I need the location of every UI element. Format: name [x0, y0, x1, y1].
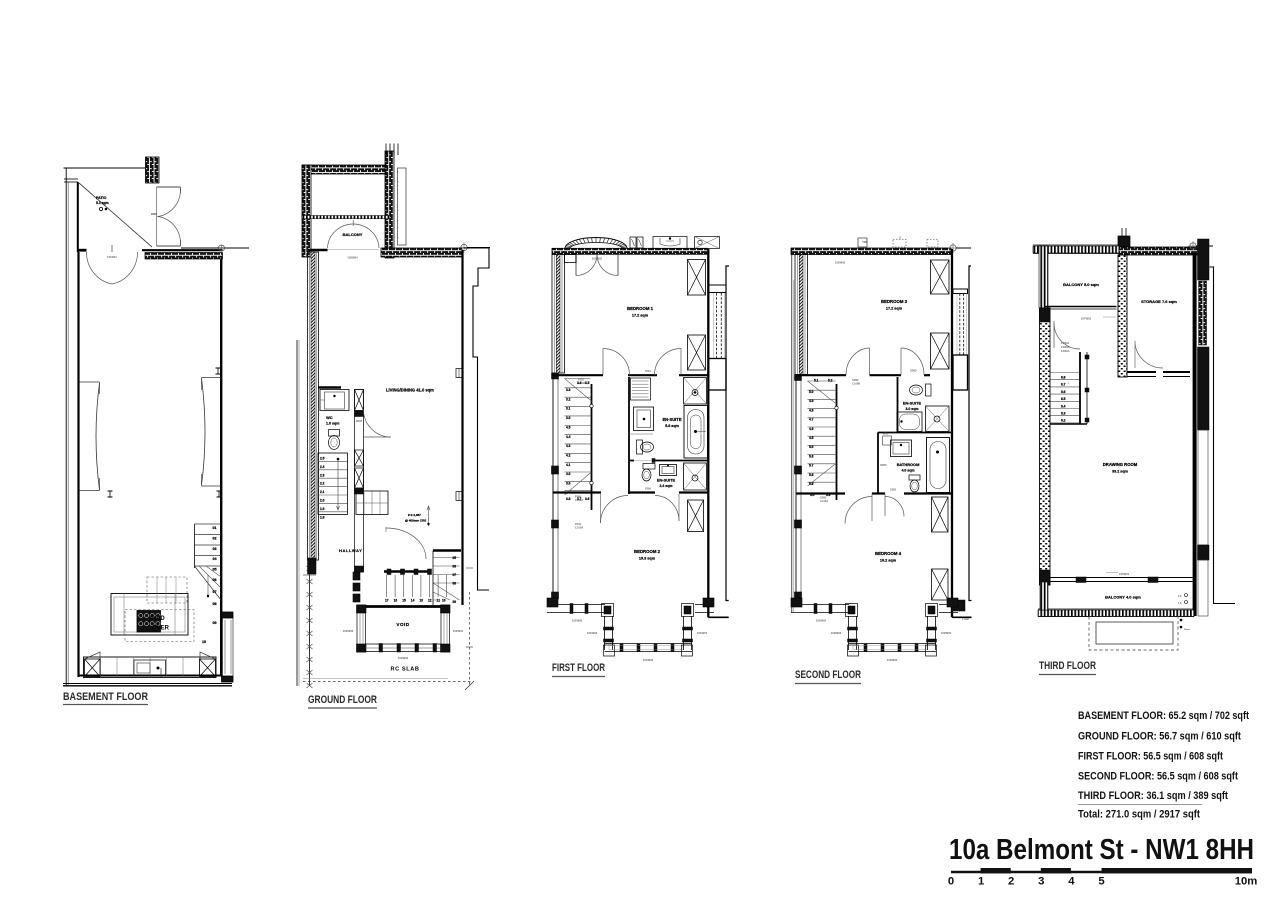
svg-text:10: 10 — [442, 599, 446, 603]
svg-text:03: 03 — [213, 547, 217, 551]
svg-text:09: 09 — [213, 621, 217, 625]
svg-text:5.6: 5.6 — [809, 473, 814, 477]
svg-text:4.8: 4.8 — [809, 408, 814, 412]
svg-text:BEDROOM 1: BEDROOM 1 — [627, 306, 654, 311]
svg-text:19.2 sqm: 19.2 sqm — [880, 559, 897, 563]
svg-text:02: 02 — [213, 537, 217, 541]
svg-text:7 riser: 7 riser — [962, 618, 969, 621]
svg-text:RC SLAB: RC SLAB — [390, 667, 419, 673]
svg-text:102W05: 102W05 — [816, 619, 827, 623]
svg-text:107W01: 107W01 — [1119, 572, 1130, 576]
svg-text:VOID: VOID — [150, 616, 165, 622]
svg-text:15: 15 — [402, 599, 406, 603]
svg-text:CL00A: CL00A — [575, 498, 583, 502]
svg-text:6.4: 6.4 — [1061, 404, 1066, 408]
svg-text:16: 16 — [394, 599, 398, 603]
svg-text:3.8: 3.8 — [566, 497, 571, 501]
svg-text:4.9: 4.9 — [809, 399, 814, 403]
svg-text:101W02: 101W02 — [592, 257, 603, 261]
svg-text:THIRD FLOOR: 36.1 sqm / 389 sq: THIRD FLOOR: 36.1 sqm / 389 sqft — [1078, 790, 1228, 802]
svg-text:05: 05 — [453, 556, 457, 560]
svg-text:33.2 sqm: 33.2 sqm — [1112, 470, 1129, 474]
svg-text:6.3: 6.3 — [1061, 412, 1066, 416]
svg-text:CL00A: CL00A — [820, 499, 828, 503]
svg-text:5.1 sqm: 5.1 sqm — [96, 201, 109, 205]
svg-text:102W02: 102W02 — [887, 658, 898, 662]
svg-text:3.9: 3.9 — [566, 482, 571, 486]
svg-text:GROUND FLOOR: GROUND FLOOR — [308, 694, 377, 706]
svg-text:12: 12 — [428, 599, 432, 603]
svg-text:BASEMENT FLOOR: BASEMENT FLOOR — [63, 691, 148, 703]
svg-text:10m: 10m — [1235, 876, 1258, 888]
svg-text:1: 1 — [978, 876, 984, 888]
svg-text:102W01: 102W01 — [453, 629, 464, 633]
svg-text:102W02: 102W02 — [398, 656, 409, 660]
svg-text:SECOND FLOOR: 56.5 sqm / 608 s: SECOND FLOOR: 56.5 sqm / 608 sqft — [1078, 771, 1238, 783]
svg-text:3.5: 3.5 — [585, 381, 590, 385]
svg-text:101W05: 101W05 — [572, 619, 583, 623]
svg-text:1.0 sqm: 1.0 sqm — [326, 422, 339, 426]
svg-text:10a Belmont St - NW1 8HH: 10a Belmont St - NW1 8HH — [949, 834, 1254, 866]
svg-text:3.2: 3.2 — [566, 397, 571, 401]
svg-text:SD05: SD05 — [880, 463, 887, 467]
svg-text:2.1: 2.1 — [320, 490, 325, 494]
svg-text:101W03: 101W03 — [587, 631, 598, 635]
svg-text:GROUND FLOOR: 56.7 sqm / 610 s: GROUND FLOOR: 56.7 sqm / 610 sqft — [1078, 731, 1241, 743]
svg-text:Paper: Paper — [1184, 629, 1190, 631]
svg-text:SECOND FLOOR: SECOND FLOOR — [795, 669, 861, 681]
svg-text:4.1: 4.1 — [566, 463, 571, 467]
svg-text:BEDROOM 4: BEDROOM 4 — [875, 551, 902, 556]
svg-text:17: 17 — [385, 599, 389, 603]
svg-text:BALCONY 4.0 sqm: BALCONY 4.0 sqm — [1105, 595, 1141, 600]
svg-text:0003: 0003 — [356, 419, 363, 423]
svg-text:102W03: 102W03 — [343, 629, 354, 633]
svg-text:07: 07 — [213, 590, 217, 594]
svg-text:3.0 sqm: 3.0 sqm — [905, 407, 918, 411]
svg-text:CL00B: CL00B — [852, 382, 860, 386]
svg-text:17.2 sqm: 17.2 sqm — [632, 314, 649, 318]
svg-text:3.3: 3.3 — [566, 388, 571, 392]
svg-text:09: 09 — [453, 600, 457, 604]
svg-text:5.2: 5.2 — [828, 379, 833, 383]
svg-text:SD02: SD02 — [852, 378, 859, 382]
svg-text:PATIO: PATIO — [96, 196, 107, 200]
svg-text:19.3 sqm: 19.3 sqm — [639, 557, 656, 561]
svg-text:6.5: 6.5 — [1061, 397, 1066, 401]
svg-text:6.7: 6.7 — [1061, 383, 1066, 387]
svg-text:F060: F060 — [575, 495, 581, 499]
svg-text:101W01: 101W01 — [107, 255, 117, 259]
svg-text:3.6: 3.6 — [585, 497, 590, 501]
svg-text:1.8: 1.8 — [320, 515, 325, 519]
svg-text:4.5: 4.5 — [809, 436, 814, 440]
svg-text:14: 14 — [411, 599, 415, 603]
svg-text:FIRST FLOOR: FIRST FLOOR — [552, 662, 605, 674]
svg-text:BASEMENT FLOOR: 65.2 sqm / 702: BASEMENT FLOOR: 65.2 sqm / 702 sqft — [1078, 710, 1249, 722]
svg-text:4.7: 4.7 — [809, 418, 814, 422]
svg-text:4.4: 4.4 — [566, 435, 571, 439]
svg-text:CL00A: CL00A — [575, 526, 583, 530]
svg-text:F040: F040 — [575, 522, 581, 526]
svg-text:# S 2,067: # S 2,067 — [408, 513, 421, 517]
svg-text:↓: ↓ — [1067, 380, 1069, 385]
svg-text:BEDROOM 2: BEDROOM 2 — [634, 549, 661, 554]
svg-text:01: 01 — [213, 526, 217, 530]
svg-text:0: 0 — [948, 876, 954, 888]
svg-text:5004: 5004 — [645, 369, 651, 373]
svg-text:06: 06 — [453, 565, 457, 569]
svg-text:101W02: 101W02 — [643, 658, 654, 662]
svg-text:5.8 sqm: 5.8 sqm — [665, 424, 679, 428]
svg-text:08: 08 — [213, 602, 217, 606]
svg-text:2.4 sqm: 2.4 sqm — [659, 484, 672, 488]
svg-text:2.0: 2.0 — [320, 499, 325, 503]
svg-text:3.4: 3.4 — [577, 381, 582, 385]
svg-text:4: 4 — [1068, 876, 1075, 888]
svg-text:6.6: 6.6 — [1061, 390, 1066, 394]
svg-text:101W07: 101W07 — [697, 631, 708, 635]
svg-text:EN-SUITE: EN-SUITE — [657, 478, 676, 483]
svg-text:17.2 sqm: 17.2 sqm — [886, 307, 903, 311]
svg-text:6.8: 6.8 — [1061, 376, 1066, 380]
svg-text:4.6: 4.6 — [809, 427, 814, 431]
svg-text:@ 400mm CRS: @ 400mm CRS — [405, 519, 426, 523]
svg-text:OVER: OVER — [152, 626, 170, 632]
svg-text:3.0: 3.0 — [566, 416, 571, 420]
svg-text:13: 13 — [419, 599, 423, 603]
svg-text:F.D001: F.D001 — [1061, 341, 1070, 345]
svg-text:5: 5 — [1098, 876, 1104, 888]
svg-text:2: 2 — [1008, 876, 1014, 888]
svg-text:4.5: 4.5 — [566, 425, 571, 429]
svg-text:STORAGE 7.6 sqm: STORAGE 7.6 sqm — [1141, 299, 1177, 304]
svg-text:F.D00A: F.D00A — [1061, 345, 1070, 349]
svg-text:4.2: 4.2 — [566, 453, 571, 457]
svg-text:2.4: 2.4 — [320, 465, 325, 469]
svg-text:06: 06 — [213, 578, 217, 582]
svg-text:5.0: 5.0 — [809, 390, 814, 394]
svg-text:102W04: 102W04 — [941, 631, 952, 635]
svg-text:3: 3 — [1038, 876, 1044, 888]
svg-text:WC: WC — [326, 415, 333, 420]
svg-text:F.D00A: F.D00A — [1061, 349, 1070, 353]
svg-text:5.7: 5.7 — [809, 464, 814, 468]
svg-text:2.2: 2.2 — [320, 482, 325, 486]
svg-text:107W02: 107W02 — [1081, 317, 1092, 321]
svg-text:HALLWAY: HALLWAY — [339, 548, 362, 553]
svg-text:DRAWING ROOM: DRAWING ROOM — [1103, 462, 1138, 467]
svg-text:5.9: 5.9 — [809, 445, 814, 449]
svg-text:I WB: I WB — [862, 241, 868, 244]
svg-text:4.3: 4.3 — [566, 444, 571, 448]
svg-text:102W02: 102W02 — [835, 261, 846, 265]
svg-text:5.1: 5.1 — [814, 379, 819, 383]
svg-text:EN-SUITE: EN-SUITE — [662, 417, 681, 422]
svg-text:05: 05 — [213, 568, 217, 572]
svg-text:SD02: SD02 — [820, 496, 827, 500]
svg-text:08: 08 — [453, 582, 457, 586]
svg-text:SD01: SD01 — [890, 488, 897, 492]
svg-text:10: 10 — [202, 640, 206, 644]
svg-text:4.0: 4.0 — [566, 472, 571, 476]
svg-text:BALCONY: BALCONY — [343, 232, 363, 237]
svg-text:BATHROOM: BATHROOM — [897, 462, 920, 467]
svg-text:SD03: SD03 — [910, 369, 917, 373]
svg-text:FIRST FLOOR: 56.5 sqm / 608 sq: FIRST FLOOR: 56.5 sqm / 608 sqft — [1078, 751, 1223, 763]
svg-text:102W03: 102W03 — [831, 631, 842, 635]
svg-text:LIVING/DINING 41.0 sqm: LIVING/DINING 41.0 sqm — [386, 388, 434, 393]
svg-text:VOID: VOID — [396, 622, 409, 627]
svg-text:07: 07 — [453, 573, 457, 577]
svg-text:W10: W10 — [883, 433, 889, 436]
svg-text:F006: F006 — [645, 487, 651, 491]
svg-text:BEDROOM 3: BEDROOM 3 — [881, 299, 908, 304]
svg-text:5.8: 5.8 — [809, 454, 814, 458]
svg-text:2.5: 2.5 — [320, 457, 325, 461]
svg-text:6.2: 6.2 — [1061, 419, 1066, 423]
svg-text:11: 11 — [437, 599, 441, 603]
svg-text:2.3: 2.3 — [320, 473, 325, 477]
svg-text:4.0 sqm: 4.0 sqm — [901, 469, 914, 473]
svg-text:Total: 271.0 sqm / 2917 sqft: Total: 271.0 sqm / 2917 sqft — [1078, 809, 1200, 821]
svg-text:1.9: 1.9 — [320, 507, 325, 511]
svg-text:BWD: BWD — [151, 212, 157, 216]
svg-text:3.1: 3.1 — [566, 407, 571, 411]
svg-text:THIRD FLOOR: THIRD FLOOR — [1039, 660, 1096, 672]
svg-text:BALCONY 5.0 sqm: BALCONY 5.0 sqm — [1063, 282, 1099, 287]
svg-text:102W04: 102W04 — [347, 256, 358, 260]
svg-text:EN-SUITE: EN-SUITE — [903, 401, 922, 406]
